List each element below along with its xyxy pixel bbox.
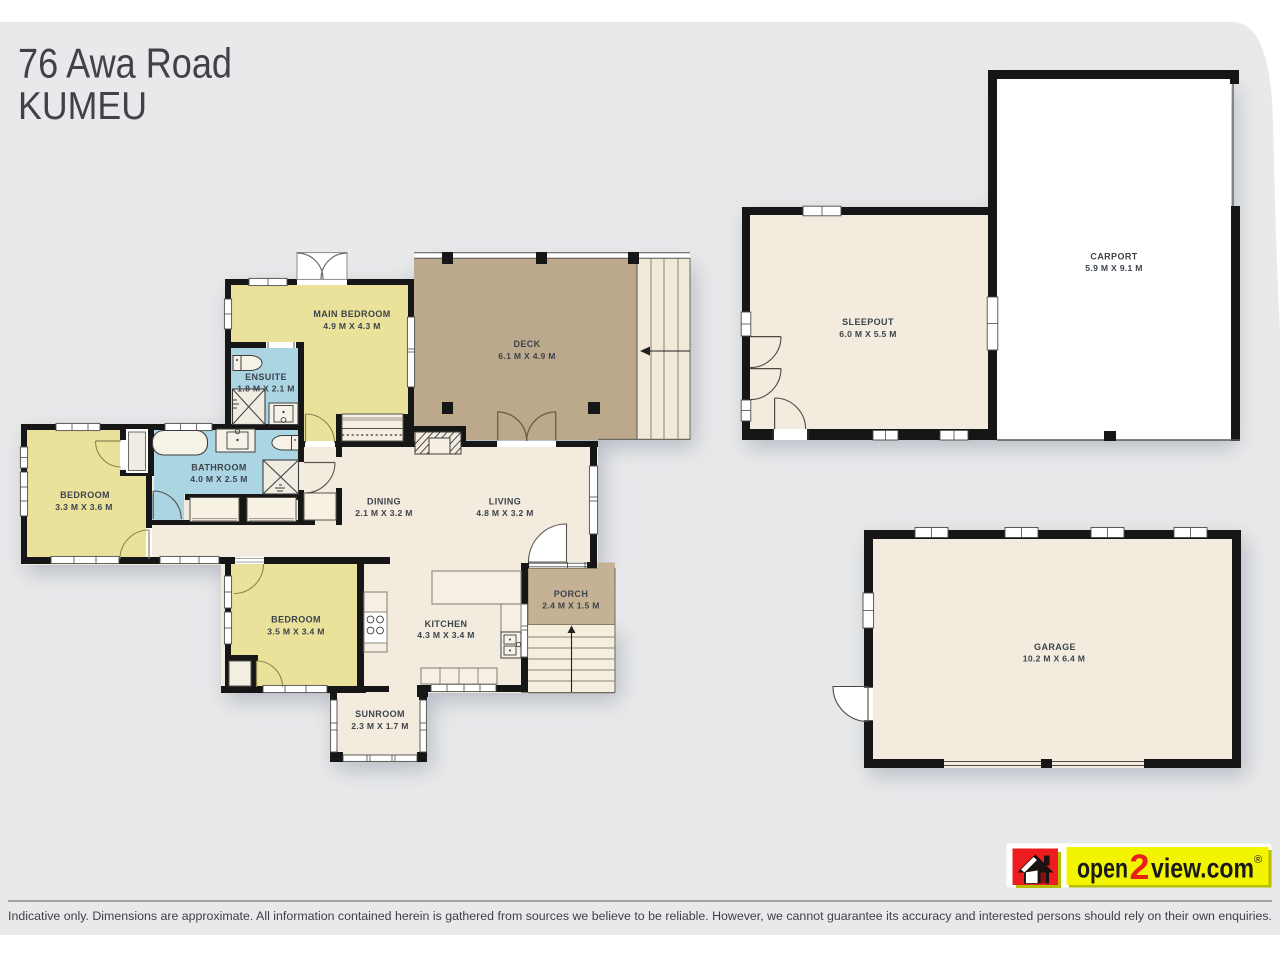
svg-text:MAIN BEDROOM: MAIN BEDROOM	[313, 309, 390, 319]
svg-text:3.5 M X 3.4 M: 3.5 M X 3.4 M	[267, 627, 324, 637]
svg-text:6.0 M X 5.5 M: 6.0 M X 5.5 M	[839, 329, 896, 339]
svg-text:SUNROOM: SUNROOM	[355, 709, 405, 719]
svg-text:10.2 M X 6.4 M: 10.2 M X 6.4 M	[1023, 654, 1085, 664]
svg-text:GARAGE: GARAGE	[1034, 642, 1076, 652]
svg-text:2.4 M X 1.5 M: 2.4 M X 1.5 M	[542, 601, 599, 611]
svg-text:PORCH: PORCH	[554, 589, 589, 599]
svg-text:DINING: DINING	[367, 497, 401, 507]
svg-text:2.3 M X 1.7 M: 2.3 M X 1.7 M	[351, 721, 408, 731]
svg-text:3.3 M X 3.6 M: 3.3 M X 3.6 M	[55, 502, 112, 512]
svg-text:BEDROOM: BEDROOM	[60, 490, 110, 500]
svg-text:KITCHEN: KITCHEN	[425, 619, 468, 629]
svg-text:CARPORT: CARPORT	[1090, 252, 1137, 262]
svg-text:4.0 M X 2.5 M: 4.0 M X 2.5 M	[190, 474, 247, 484]
svg-text:KUMEU: KUMEU	[18, 85, 147, 128]
svg-text:2: 2	[1130, 848, 1150, 887]
svg-text:DECK: DECK	[513, 339, 540, 349]
svg-text:5.9 M X 9.1 M: 5.9 M X 9.1 M	[1085, 263, 1142, 273]
svg-text:4.9 M X 4.3 M: 4.9 M X 4.3 M	[323, 321, 380, 331]
svg-text:76 Awa Road: 76 Awa Road	[18, 40, 232, 87]
svg-text:ENSUITE: ENSUITE	[245, 372, 287, 382]
svg-text:view.com: view.com	[1151, 853, 1254, 884]
svg-text:4.8 M X 3.2 M: 4.8 M X 3.2 M	[476, 508, 533, 518]
svg-text:BEDROOM: BEDROOM	[271, 615, 321, 625]
svg-text:2.1 M X 3.2 M: 2.1 M X 3.2 M	[355, 508, 412, 518]
svg-text:6.1 M X 4.9 M: 6.1 M X 4.9 M	[498, 351, 555, 361]
svg-text:4.3 M X 3.4 M: 4.3 M X 3.4 M	[417, 630, 474, 640]
svg-text:®: ®	[1254, 854, 1262, 866]
svg-text:LIVING: LIVING	[489, 497, 521, 507]
svg-text:1.8 M X 2.1 M: 1.8 M X 2.1 M	[237, 384, 294, 394]
svg-text:open: open	[1077, 853, 1128, 884]
svg-text:Indicative only. Dimensions ar: Indicative only. Dimensions are approxim…	[8, 909, 1272, 923]
svg-text:SLEEPOUT: SLEEPOUT	[842, 317, 894, 327]
svg-text:BATHROOM: BATHROOM	[191, 463, 247, 473]
